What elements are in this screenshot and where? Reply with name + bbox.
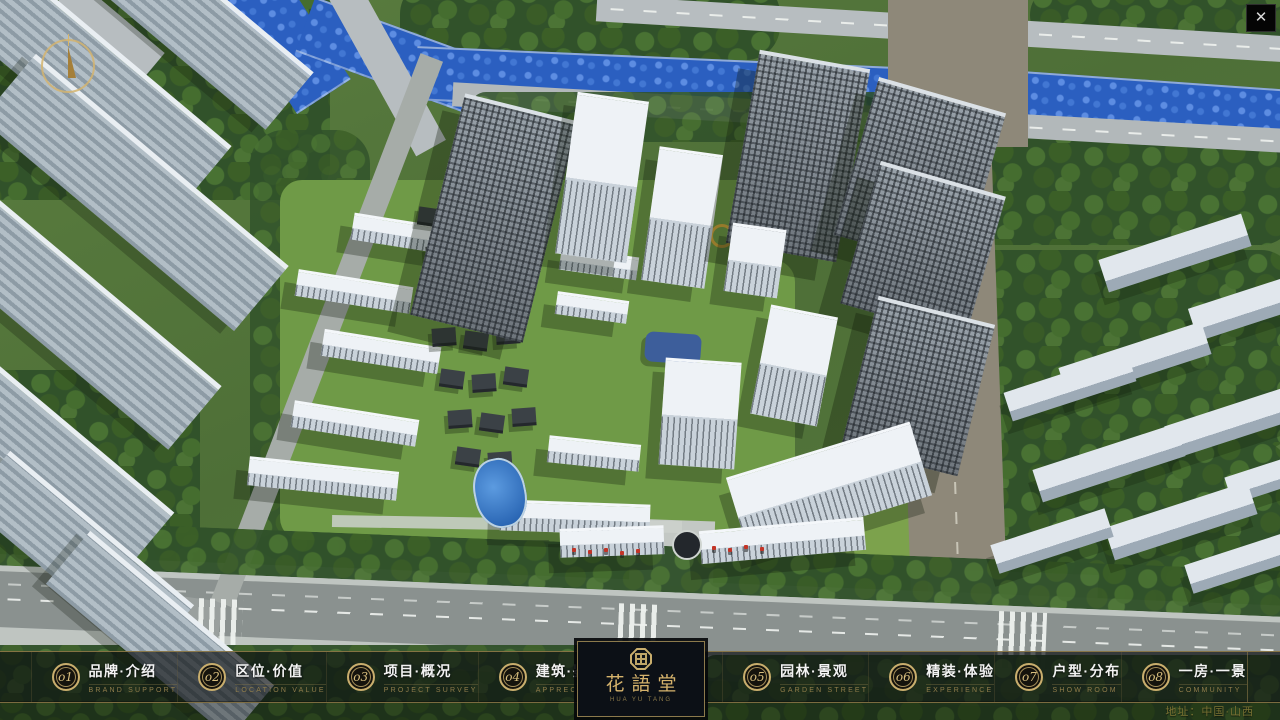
nav-badge-3: o3 bbox=[347, 663, 375, 691]
nav-item-decoration-experience[interactable]: o6 精装·体验 EXPERIENCE bbox=[868, 652, 994, 702]
nav-item-brand-intro[interactable]: o1 品牌·介绍 BRAND SUPPORT bbox=[31, 652, 178, 702]
flag bbox=[636, 549, 640, 553]
nav-badge-4: o4 bbox=[499, 663, 527, 691]
nav-sublabel: LOCATION VALUE bbox=[235, 684, 325, 694]
nav-item-room-view[interactable]: o8 一房·一景 COMMUNITY bbox=[1121, 652, 1247, 702]
building bbox=[447, 409, 472, 429]
nav-item-project-survey[interactable]: o3 项目·概况 PROJECT SURVEY bbox=[326, 652, 478, 702]
nav-label: 精装·体验 bbox=[926, 661, 994, 681]
tower-building bbox=[658, 357, 741, 469]
building bbox=[479, 412, 505, 433]
seal-emblem-icon bbox=[630, 648, 652, 670]
building bbox=[471, 373, 496, 393]
project-address: 地址：中国·山西 bbox=[1165, 703, 1254, 719]
nav-badge-6: o6 bbox=[889, 663, 917, 691]
flag bbox=[620, 551, 624, 555]
nav-sublabel: PROJECT SURVEY bbox=[384, 684, 478, 694]
nav-badge-2: o2 bbox=[198, 663, 226, 691]
building bbox=[511, 407, 536, 427]
building bbox=[431, 327, 456, 347]
nav-sublabel: COMMUNITY bbox=[1179, 684, 1247, 694]
project-logo-name: 花語堂 bbox=[578, 672, 704, 696]
nav-sublabel: SHOW ROOM bbox=[1052, 684, 1120, 694]
flag bbox=[604, 548, 608, 552]
map-3d-view[interactable] bbox=[0, 0, 1280, 720]
nav-badge-1: o1 bbox=[52, 663, 80, 691]
compass-north-icon bbox=[36, 34, 100, 98]
project-logo-subtitle: HUA YU TANG bbox=[578, 697, 704, 703]
tower-building bbox=[723, 223, 786, 299]
compass-needle-shade bbox=[68, 46, 76, 78]
entrance-colonnade bbox=[560, 525, 665, 558]
close-icon: ✕ bbox=[1255, 9, 1268, 26]
nav-lead-spacer bbox=[0, 652, 31, 702]
nav-label: 一房·一景 bbox=[1179, 661, 1247, 681]
nav-label: 区位·价值 bbox=[235, 661, 325, 681]
flag bbox=[760, 547, 764, 551]
flag bbox=[712, 546, 716, 550]
flag bbox=[588, 550, 592, 554]
building bbox=[455, 446, 481, 467]
flag bbox=[572, 548, 576, 552]
nav-label: 园林·景观 bbox=[780, 661, 868, 681]
entrance-gate bbox=[672, 530, 702, 560]
nav-badge-5: o5 bbox=[743, 663, 771, 691]
project-logo-panel[interactable]: 花語堂 HUA YU TANG bbox=[577, 641, 705, 717]
close-button[interactable]: ✕ bbox=[1246, 4, 1276, 32]
nav-label: 品牌·介绍 bbox=[89, 661, 178, 681]
building bbox=[503, 366, 529, 387]
nav-tail-spacer bbox=[1247, 652, 1280, 702]
nav-item-location-value[interactable]: o2 区位·价值 LOCATION VALUE bbox=[177, 652, 325, 702]
nav-badge-8: o8 bbox=[1142, 663, 1170, 691]
nav-badge-7: o7 bbox=[1015, 663, 1043, 691]
nav-sublabel: BRAND SUPPORT bbox=[89, 684, 178, 694]
nav-label: 项目·概况 bbox=[384, 661, 478, 681]
nav-item-unit-distribution[interactable]: o7 户型·分布 SHOW ROOM bbox=[994, 652, 1120, 702]
building bbox=[463, 330, 489, 351]
nav-item-garden-landscape[interactable]: o5 园林·景观 GARDEN STREET bbox=[722, 652, 868, 702]
presentation-screen: ✕ 地址：中国·山西 o1 品牌·介绍 BRAND SUPPORT o2 区位·… bbox=[0, 0, 1280, 720]
nav-sublabel: EXPERIENCE bbox=[926, 684, 994, 694]
flag bbox=[728, 548, 732, 552]
nav-sublabel: GARDEN STREET bbox=[780, 684, 868, 694]
flag bbox=[744, 545, 748, 549]
building bbox=[439, 368, 465, 389]
nav-label: 户型·分布 bbox=[1052, 661, 1120, 681]
